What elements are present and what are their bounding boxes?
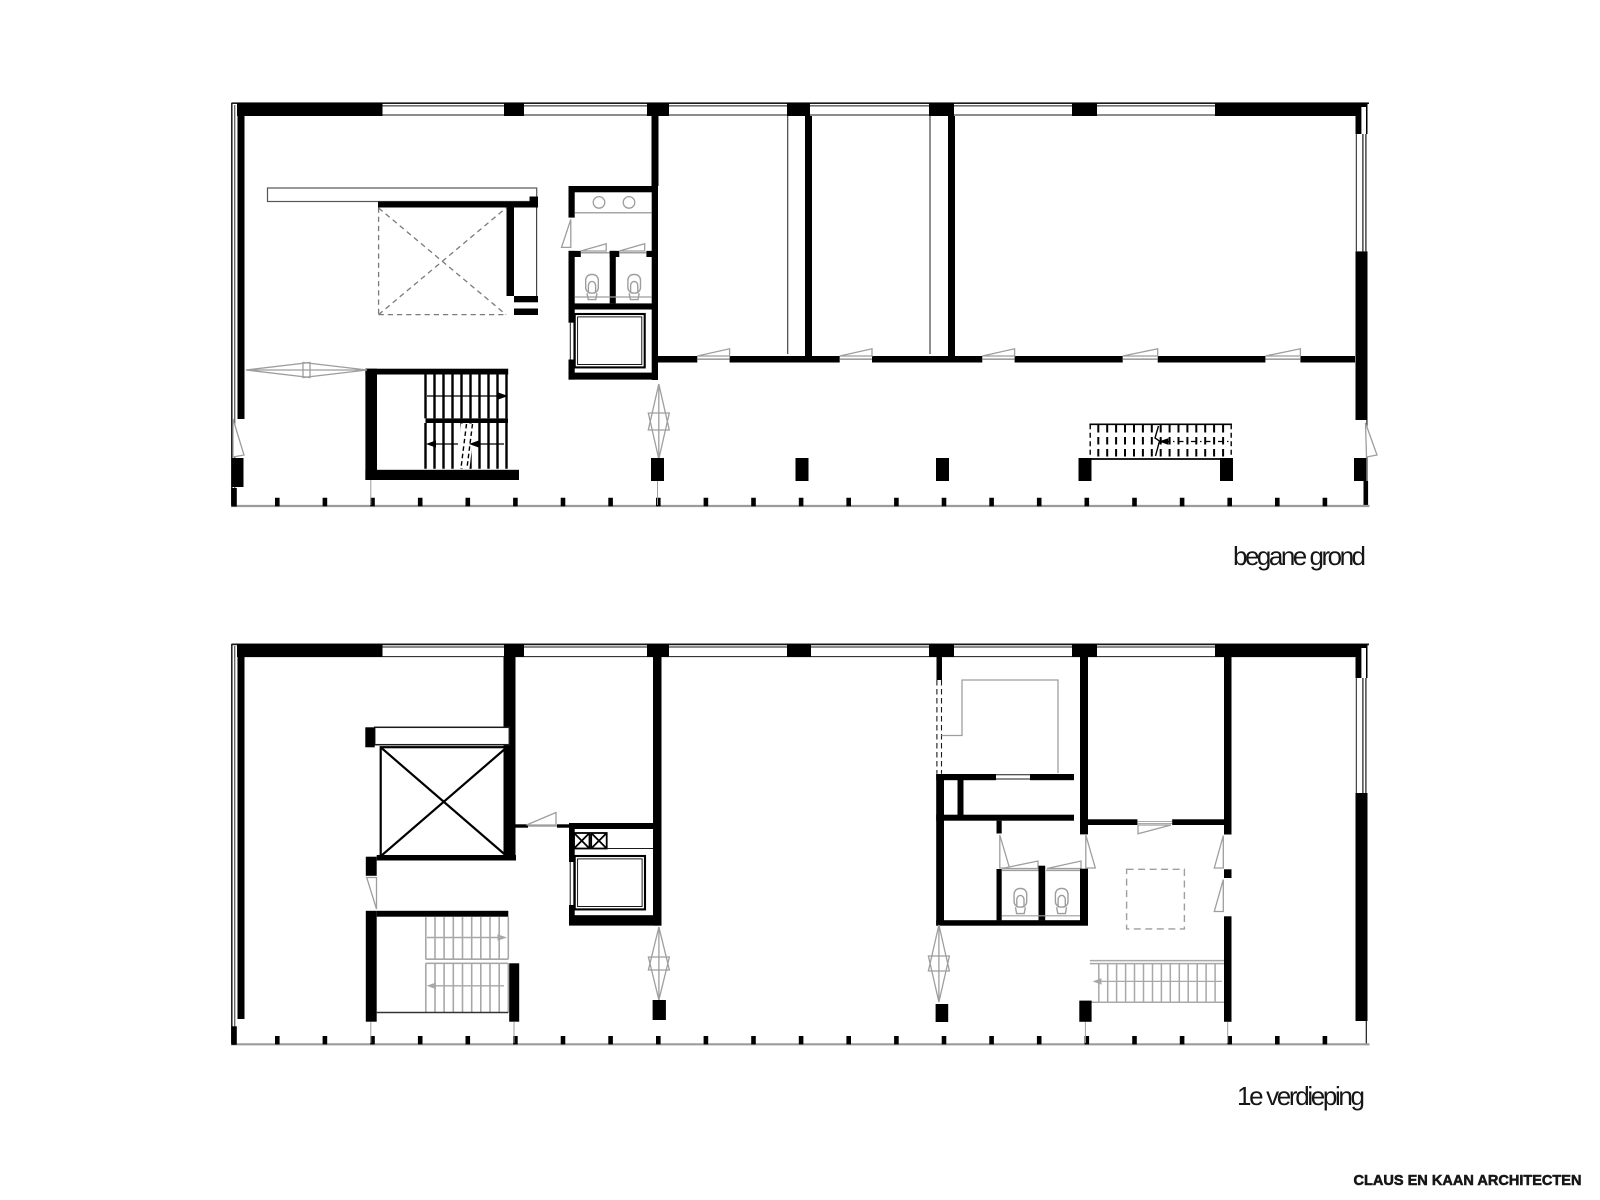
svg-text:begane grond: begane grond: [1233, 541, 1366, 571]
svg-text:1e verdieping: 1e verdieping: [1237, 1081, 1365, 1111]
svg-text:CLAUS EN KAAN ARCHITECTEN: CLAUS EN KAAN ARCHITECTEN: [1354, 1173, 1582, 1189]
